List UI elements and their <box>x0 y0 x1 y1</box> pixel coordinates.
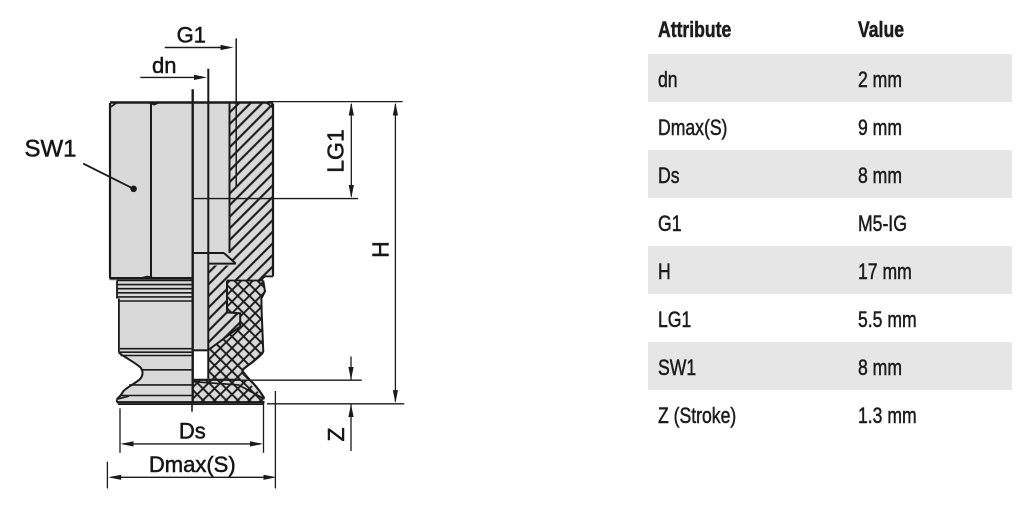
svg-text:G1: G1 <box>177 23 206 48</box>
svg-text:Dmax(S): Dmax(S) <box>149 452 236 477</box>
svg-text:dn: dn <box>152 53 176 78</box>
svg-text:LG1: LG1 <box>323 129 349 172</box>
svg-text:Z: Z <box>323 427 349 441</box>
svg-text:Ds: Ds <box>179 418 206 443</box>
svg-text:H: H <box>368 241 394 258</box>
svg-text:SW1: SW1 <box>25 136 77 163</box>
